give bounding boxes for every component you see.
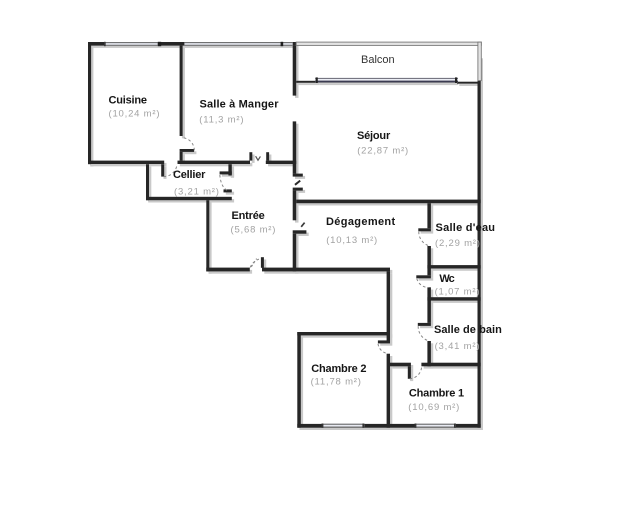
svg-text:(11,3 m²): (11,3 m²): [199, 114, 244, 125]
svg-text:Chambre 2: Chambre 2: [311, 363, 366, 375]
svg-text:Cellier: Cellier: [173, 169, 206, 181]
svg-text:(5,68 m²): (5,68 m²): [231, 224, 277, 235]
svg-text:Salle à Manger: Salle à Manger: [200, 99, 280, 111]
svg-text:(10,69 m²): (10,69 m²): [408, 402, 460, 413]
svg-text:Entrée: Entrée: [232, 210, 265, 222]
svg-text:(3,41 m²): (3,41 m²): [435, 341, 481, 352]
svg-text:Dégagement: Dégagement: [326, 216, 396, 228]
svg-text:(3,21 m²): (3,21 m²): [174, 187, 220, 198]
svg-text:(11,78 m²): (11,78 m²): [311, 377, 362, 388]
svg-text:Wc: Wc: [439, 273, 454, 285]
svg-text:Balcon: Balcon: [361, 54, 395, 66]
svg-text:Salle de bain: Salle de bain: [434, 324, 502, 336]
svg-text:Chambre 1: Chambre 1: [409, 387, 464, 399]
svg-text:Cuisine: Cuisine: [109, 95, 147, 107]
svg-text:(10,13 m²): (10,13 m²): [326, 235, 378, 246]
svg-text:(2,29 m²): (2,29 m²): [435, 238, 481, 249]
svg-text:(1,07 m²): (1,07 m²): [435, 287, 481, 298]
svg-text:Salle d'eau: Salle d'eau: [436, 222, 496, 234]
svg-text:Séjour: Séjour: [357, 130, 391, 142]
svg-text:(10,24 m²): (10,24 m²): [109, 109, 161, 120]
svg-text:(22,87 m²): (22,87 m²): [357, 146, 409, 157]
